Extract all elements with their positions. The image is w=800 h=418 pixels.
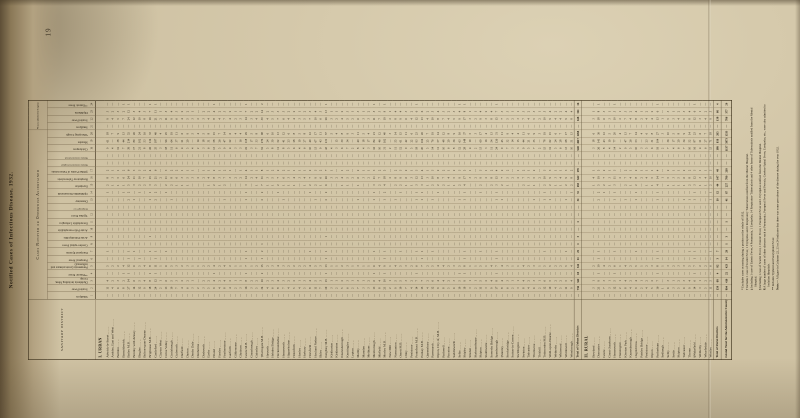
data-cell	[582, 167, 591, 174]
column-header-label: Respiratory Tuberculosis	[49, 174, 88, 181]
footnotes: *Excludes cases occurring during a porti…	[741, 103, 780, 290]
bottom-shadow	[0, 358, 800, 418]
data-cell: 22	[574, 248, 582, 255]
data-cell: —	[574, 211, 582, 218]
column-number: 22	[88, 115, 96, 122]
data-cell: 894	[721, 284, 731, 291]
column-number: 17	[88, 167, 96, 174]
data-cell: 183	[574, 181, 582, 188]
column-header-label: Erysipelas	[49, 181, 88, 188]
data-cell	[582, 145, 591, 152]
data-cell	[95, 181, 104, 188]
data-cell	[95, 262, 104, 269]
column-number: 19	[88, 137, 96, 144]
footnote: *Excludes cases occurring during a porti…	[741, 103, 745, 290]
data-cell	[95, 196, 104, 203]
footnote-marker: *	[741, 289, 744, 290]
column-header-label: Scarlet Fever	[49, 115, 88, 122]
data-cell: 948	[574, 145, 582, 152]
column-header-label: Measles	[49, 137, 88, 144]
data-cell: 147	[713, 174, 721, 181]
column-number: 21	[88, 123, 96, 130]
column-number: 18	[88, 145, 96, 152]
data-cell: 66	[713, 108, 721, 115]
footnote: ¶A large number of cases of other diseas…	[763, 103, 770, 290]
data-cell: 31	[574, 196, 582, 203]
table-body: I. URBANAdwick-le-Street—114—5—1———————1…	[95, 100, 731, 359]
column-header: §Other Forms of Tuberculosis	[47, 167, 87, 174]
data-cell	[95, 270, 104, 277]
data-cell	[582, 196, 591, 203]
data-cell	[582, 204, 591, 211]
footnote-marker: ¶	[763, 288, 766, 290]
column-header: Respiratory Tuberculosis	[47, 174, 87, 181]
table-row: Total of Urban Districts—736342183411122…	[574, 100, 582, 359]
data-cell: —	[721, 159, 731, 166]
scanned-report-page: 19 Notified Cases of Infectious Disease,…	[0, 0, 800, 418]
data-cell	[95, 255, 104, 262]
data-cell	[95, 292, 104, 299]
footnote-marker: ‡	[750, 289, 753, 290]
data-cell	[582, 211, 591, 218]
footnote: ‡Including 1 case of Enteric Fever, 4 Pn…	[750, 103, 757, 290]
data-cell: 4	[713, 100, 721, 107]
data-cell	[582, 240, 591, 247]
data-cell	[582, 152, 591, 159]
data-cell: —	[713, 159, 721, 166]
data-cell: —	[574, 152, 582, 159]
data-cell: 410	[721, 277, 731, 284]
header-group-row: SANITARY DISTRICTCases Notified or Other…	[28, 100, 47, 359]
data-cell: 956	[713, 137, 721, 144]
data-cell: 3	[574, 233, 582, 240]
data-cell: 3	[721, 233, 731, 240]
column-number: 13	[88, 196, 96, 203]
data-cell: 16	[574, 100, 582, 107]
data-cell	[95, 152, 104, 159]
column-header-label: Chickenpox	[49, 144, 88, 151]
data-cell: 11	[574, 255, 582, 262]
column-header: Smallpox	[47, 292, 87, 299]
column-number: 14	[88, 189, 96, 196]
table-header: SANITARY DISTRICTCases Notified or Other…	[28, 100, 95, 359]
data-cell: 40	[713, 167, 721, 174]
column-number: 9	[88, 233, 96, 240]
rotated-page-content: Notified Cases of Infectious Disease, 19…	[8, 0, 780, 360]
data-cell	[95, 277, 104, 284]
column-number: 2	[88, 284, 96, 291]
data-cell: —	[713, 226, 721, 233]
data-cell: 189	[713, 145, 721, 152]
data-cell: 12	[713, 189, 721, 196]
column-header: **Enteric Fever	[47, 270, 87, 277]
column-header-label: Diphtheria	[49, 107, 88, 114]
column-number: 6	[88, 255, 96, 262]
data-cell: 218	[721, 167, 731, 174]
data-cell	[582, 226, 591, 233]
column-header: Diphtheria	[47, 108, 87, 115]
data-cell: —	[713, 204, 721, 211]
table-row: II. RURAL	[582, 100, 591, 359]
column-header: Malaria contracted abroad	[47, 152, 87, 159]
data-cell: —	[721, 211, 731, 218]
data-cell	[95, 233, 104, 240]
column-header: Whooping Cough	[47, 130, 87, 137]
data-cell: 1268	[574, 130, 582, 137]
data-cell	[95, 211, 104, 218]
right-edge-shadow	[795, 0, 800, 418]
column-header-label: Encephalitis Lethargica	[49, 218, 88, 225]
column-number: 15	[88, 181, 96, 188]
footnote-text: Including 1 case of Enteric Fever, 4 Pne…	[750, 108, 757, 288]
column-number: 1	[88, 292, 96, 299]
column-header: Malaria contracted in England	[47, 159, 87, 166]
data-cell	[95, 123, 104, 130]
column-header: Acute Poliomyelitis	[47, 233, 87, 240]
data-cell: 736	[574, 284, 582, 291]
data-cell: 5873	[721, 137, 731, 144]
data-cell: 29	[721, 248, 731, 255]
data-cell: —	[721, 123, 731, 130]
column-number: 5	[88, 262, 96, 269]
data-cell	[95, 137, 104, 144]
column-number: 24	[88, 100, 96, 107]
data-cell: 14	[721, 255, 731, 262]
column-number: 3	[88, 277, 96, 284]
data-cell	[95, 248, 104, 255]
data-cell: —	[713, 211, 721, 218]
column-header: **Enteric Fever	[47, 100, 87, 107]
column-number: 16	[88, 174, 96, 181]
data-cell: —	[721, 152, 731, 159]
footnote-text: Includes Typhoid and Paratyphoid Fever.	[771, 237, 774, 286]
column-header-label: Puerperal Fever	[49, 255, 88, 262]
data-cell: 648	[574, 115, 582, 122]
column-header: Acute Polio-encephalitis	[47, 226, 87, 233]
data-cell: —	[713, 218, 721, 225]
data-cell	[582, 137, 591, 144]
column-header-label: Dysentery	[49, 196, 88, 203]
data-cell: —	[574, 123, 582, 130]
column-number	[88, 152, 96, 159]
data-cell	[582, 115, 591, 122]
data-cell: 786	[721, 115, 731, 122]
data-cell	[95, 174, 104, 181]
group-admitted-header: ¶Cases admitted to Hospital.	[28, 100, 47, 130]
column-header-label: Typhus Fever	[49, 210, 88, 217]
column-header: Diphtheria including Mem. Croup	[47, 277, 87, 284]
data-cell: 789	[721, 174, 731, 181]
data-cell	[582, 262, 591, 269]
data-cell: —	[574, 204, 582, 211]
data-cell: 423	[721, 262, 731, 269]
data-cell: 55	[574, 189, 582, 196]
data-cell: 342	[574, 277, 582, 284]
infectious-disease-table: SANITARY DISTRICTCases Notified or Other…	[28, 100, 732, 360]
footnote-text: A figure in Columns 22, 23 or 24 indicat…	[776, 146, 779, 279]
table-row: I. URBAN	[95, 100, 104, 359]
data-cell: —	[713, 292, 721, 299]
column-header: Pneumonia (acute primary and influenzal)	[47, 262, 87, 269]
data-cell	[95, 189, 104, 196]
data-cell	[95, 100, 104, 107]
footnote: Note:—A figure in Columns 22, 23 or 24 i…	[776, 103, 780, 290]
data-cell: 642	[574, 174, 582, 181]
total-row-label: Total of Rural Districts	[713, 299, 721, 359]
column-header-label: §Other Forms of Tuberculosis	[49, 166, 88, 173]
footnote: **Includes Typhoid and Paratyphoid Fever…	[771, 103, 775, 290]
column-header: Relapsing Fever	[47, 204, 87, 211]
data-cell: 10	[713, 196, 721, 203]
data-cell	[95, 218, 104, 225]
column-number: 10	[88, 226, 96, 233]
data-cell	[582, 255, 591, 262]
data-cell	[582, 277, 591, 284]
column-header-label: **Enteric Fever	[49, 269, 88, 276]
column-header-label: Acute Polio-encephalitis	[49, 225, 88, 232]
data-cell: 1	[574, 218, 582, 225]
data-cell: 377	[721, 108, 731, 115]
data-cell	[95, 115, 104, 122]
column-header: Puerperal Pyrexia	[47, 248, 87, 255]
data-cell	[582, 292, 591, 299]
column-header-label: Relapsing Fever	[49, 208, 88, 211]
data-cell: —	[713, 233, 721, 240]
column-header: Puerperal Fever	[47, 255, 87, 262]
data-cell: —	[721, 226, 731, 233]
table-row: Grand Total for the Administrative Count…	[721, 100, 731, 359]
column-header: Cerebro-spinal Fever	[47, 240, 87, 247]
data-cell	[95, 159, 104, 166]
data-cell: 1	[574, 240, 582, 247]
column-number: 4	[88, 270, 96, 277]
data-cell	[582, 181, 591, 188]
column-number: 23	[88, 108, 96, 115]
column-header-label: Diphtheria including Mem. Croup	[49, 277, 88, 284]
total-row-label: Grand Total for the Administrative Count…	[721, 299, 731, 359]
data-cell: —	[574, 159, 582, 166]
footnote-marker: †	[745, 289, 748, 290]
data-cell	[95, 204, 104, 211]
data-cell	[582, 108, 591, 115]
data-cell: 4917	[574, 137, 582, 144]
data-cell: 20	[721, 100, 731, 107]
column-number: 7	[88, 248, 96, 255]
column-header-label: Puerperal Pyrexia	[49, 247, 88, 254]
sanitary-district-header: SANITARY DISTRICT	[28, 299, 95, 359]
data-cell	[95, 284, 104, 291]
column-header: Ophthalmia Neonatorum	[47, 189, 87, 196]
data-cell	[582, 174, 591, 181]
data-cell: 311	[574, 108, 582, 115]
column-header: Dysentery	[47, 196, 87, 203]
column-number	[88, 159, 96, 166]
column-number: 8	[88, 240, 96, 247]
column-number: 11	[88, 218, 96, 225]
data-cell: 44	[713, 181, 721, 188]
data-cell: —	[574, 226, 582, 233]
data-cell	[95, 240, 104, 247]
footnote: †Includes 1 case of Scarlet Fever, 1 Ery…	[745, 103, 749, 290]
footnote-marker: §	[758, 289, 761, 290]
column-header: Typhus Fever	[47, 211, 87, 218]
data-cell: —	[713, 240, 721, 247]
data-cell	[582, 130, 591, 137]
section-header-cell: I. URBAN	[95, 299, 104, 359]
data-cell: 7	[713, 248, 721, 255]
data-cell	[95, 226, 104, 233]
data-cell	[95, 130, 104, 137]
footnote-text: Includes 1 case of Scarlet Fever, 1 Erys…	[745, 153, 748, 288]
column-header: Smallpox	[47, 123, 87, 130]
column-header-label: Cerebro-spinal Fever	[49, 240, 88, 247]
data-cell	[582, 270, 591, 277]
data-cell: —	[713, 152, 721, 159]
data-cell: 1	[721, 240, 731, 247]
column-header: Encephalitis Lethargica	[47, 218, 87, 225]
column-header: Chickenpox	[47, 145, 87, 152]
footnote-marker: Note:—	[776, 280, 779, 290]
column-number	[88, 204, 96, 211]
data-cell: 82	[713, 262, 721, 269]
column-header-label: Ophthalmia Neonatorum	[49, 188, 88, 195]
data-cell: —	[574, 292, 582, 299]
data-cell	[582, 233, 591, 240]
data-cell: —	[721, 204, 731, 211]
data-cell	[95, 145, 104, 152]
data-cell	[582, 218, 591, 225]
data-cell: 178	[574, 167, 582, 174]
footnote-text: A large number of cases of other disease…	[763, 104, 770, 287]
column-header-label: Pneumonia (acute primary and influenzal)	[49, 262, 88, 269]
column-header-label: Acute Poliomyelitis	[49, 232, 88, 239]
data-cell	[95, 108, 104, 115]
column-header: Scarlet Fever	[47, 284, 87, 291]
data-cell: 67	[721, 189, 731, 196]
data-cell	[95, 167, 104, 174]
footnote-text: Excludes cases occurring during a portio…	[741, 211, 744, 288]
section-header-cell: II. RURAL	[582, 299, 591, 359]
column-header-label: Scarlet Fever	[49, 284, 88, 291]
footnote-text: Including 1 case of Scarlet Fever, 1 Ent…	[758, 143, 761, 288]
column-header-label: Malaria contracted in England	[49, 164, 88, 167]
data-cell: 4	[713, 270, 721, 277]
column-header: Measles	[47, 137, 87, 144]
column-header: Scarlet Fever	[47, 115, 87, 122]
group-notified-header: Cases Notified or Otherwise Ascertained	[28, 130, 47, 299]
data-cell	[582, 123, 591, 130]
column-header-label: **Enteric Fever	[49, 100, 88, 107]
column-header-label: Smallpox	[49, 122, 88, 129]
data-cell: 138	[713, 115, 721, 122]
footnote: §Including 1 case of Scarlet Fever, 1 En…	[758, 103, 762, 290]
data-cell	[582, 189, 591, 196]
total-row-label: Total of Urban Districts	[574, 299, 582, 359]
data-cell: 18	[574, 270, 582, 277]
data-cell: 3	[713, 255, 721, 262]
column-number: 20	[88, 130, 96, 137]
column-header-label: Malaria contracted abroad	[49, 156, 88, 159]
data-cell	[582, 248, 591, 255]
data-cell	[582, 159, 591, 166]
data-cell: 1533	[721, 130, 731, 137]
data-cell: 158	[713, 284, 721, 291]
column-header: Erysipelas	[47, 181, 87, 188]
column-header-label: Whooping Cough	[49, 129, 88, 136]
column-header-label: Smallpox	[49, 291, 88, 298]
footnote-marker: **	[771, 287, 774, 290]
data-cell	[582, 284, 591, 291]
data-cell: 68	[713, 277, 721, 284]
data-cell	[582, 100, 591, 107]
column-number: 12	[88, 211, 96, 218]
data-cell: 341	[574, 262, 582, 269]
data-cell: —	[721, 292, 731, 299]
data-cell: 265	[713, 130, 721, 137]
table-row: Total of Rural Districts—1586848237—————…	[713, 100, 721, 359]
data-cell: 1137	[721, 145, 731, 152]
data-cell: 227	[721, 181, 731, 188]
data-cell: —	[713, 123, 721, 130]
data-cell: 41	[721, 196, 731, 203]
data-cell: 22	[721, 270, 731, 277]
report-title: Notified Cases of Infectious Disease, 19…	[8, 100, 14, 360]
data-cell: 1	[721, 218, 731, 225]
